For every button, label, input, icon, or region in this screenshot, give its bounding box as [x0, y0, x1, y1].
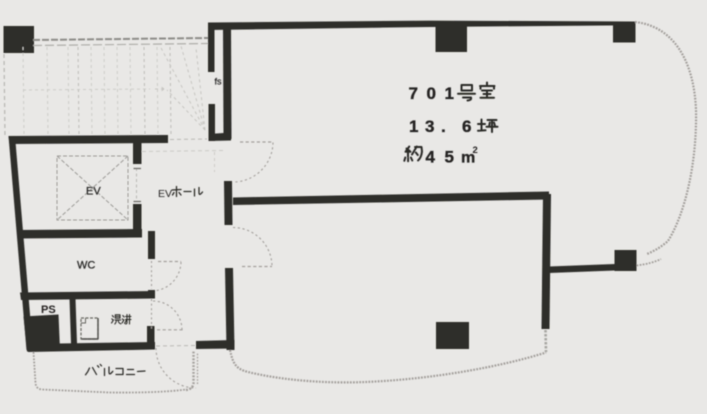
svg-text:.: .: [441, 117, 446, 136]
svg-text:EV: EV: [158, 188, 172, 200]
svg-text:fs: fs: [215, 77, 223, 87]
svg-text:WC: WC: [77, 260, 95, 272]
svg-text:5: 5: [445, 148, 454, 167]
svg-text:EV: EV: [86, 186, 101, 198]
svg-text:6: 6: [462, 117, 471, 136]
svg-text:1: 1: [445, 84, 454, 103]
svg-text:2: 2: [473, 145, 478, 156]
svg-text:PS: PS: [41, 304, 56, 316]
svg-text:1: 1: [409, 117, 418, 136]
svg-text:0: 0: [427, 84, 436, 103]
svg-text:7: 7: [409, 84, 418, 103]
svg-text:3: 3: [425, 117, 434, 136]
svg-text:4: 4: [426, 148, 436, 167]
